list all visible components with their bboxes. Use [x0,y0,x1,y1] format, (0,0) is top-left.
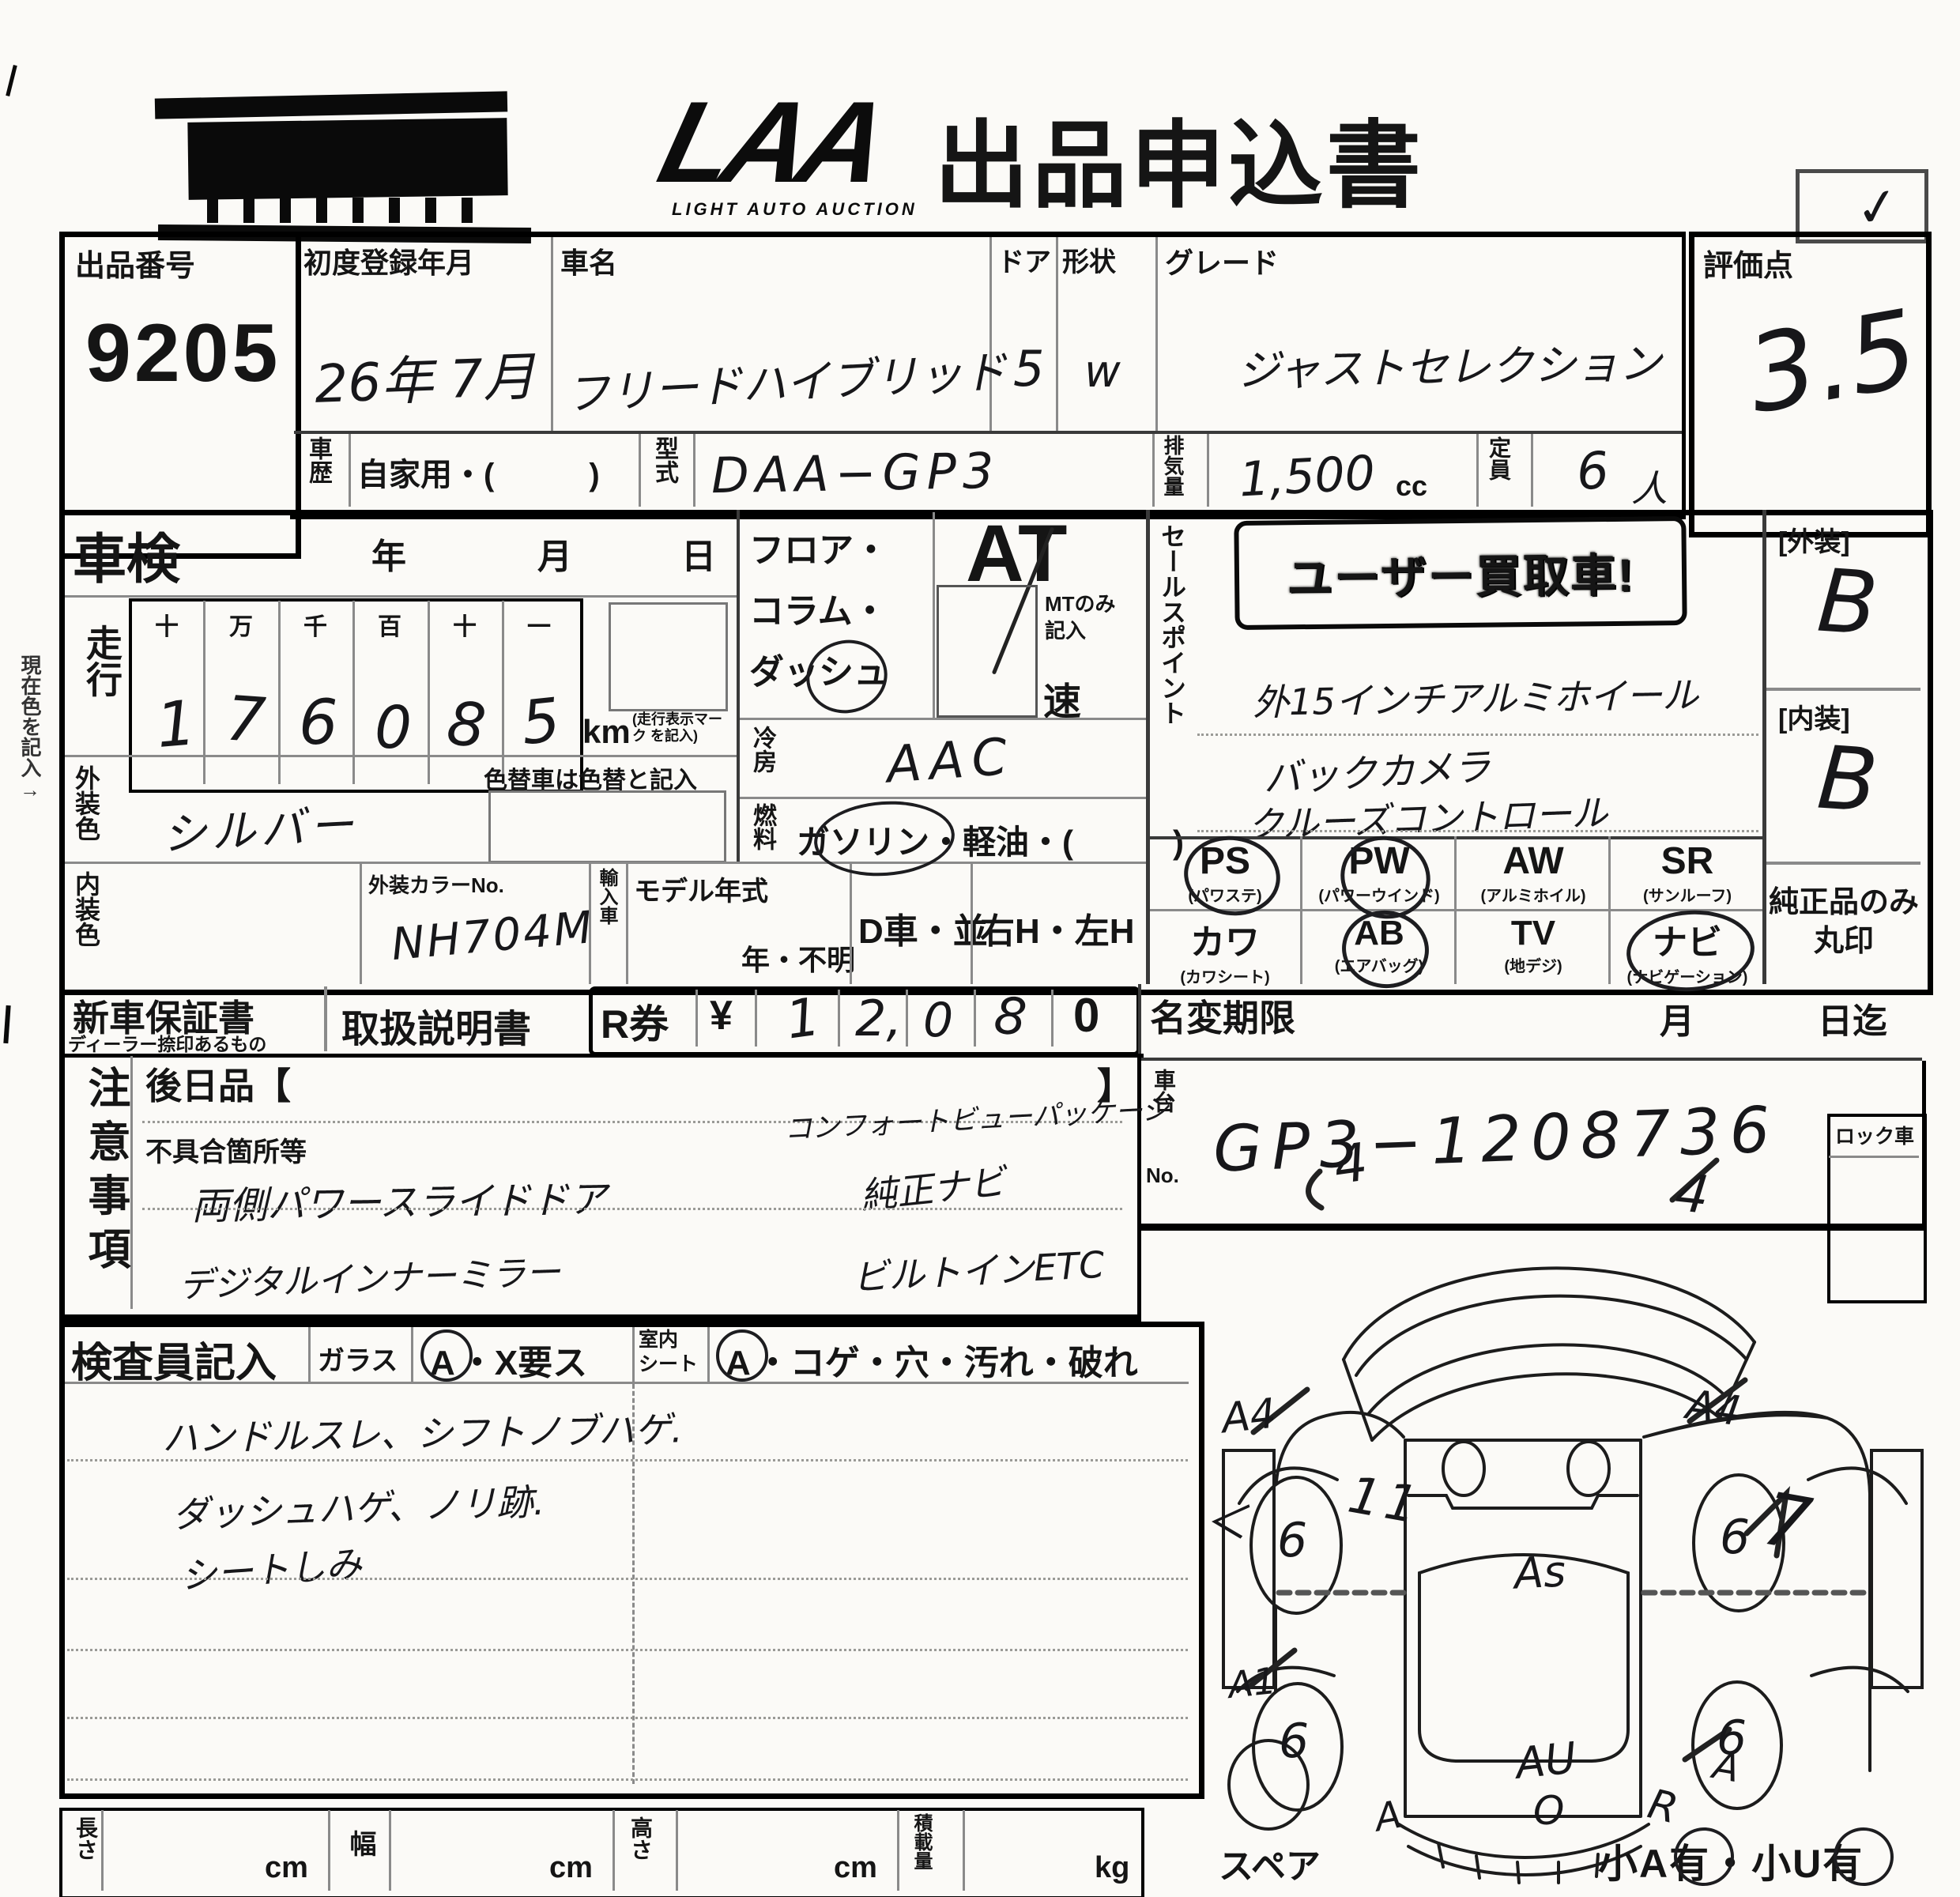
redacted-stamp [462,198,473,223]
redacted-stamp [207,198,218,223]
scan-artifact [6,65,17,96]
speed-box [937,585,1038,718]
model-year-label: モデル年式 [634,869,768,908]
score-label: 評価点 [1703,241,1793,285]
auction-sheet: LAA LIGHT AUTO AUCTION 出品申込書 ✓ 出品番号 9205… [0,0,1960,1897]
chassis-label-no: No. [1146,1163,1179,1188]
name-change-month: 月 [1660,993,1694,1043]
mileage-digit-header: 十 [453,607,477,642]
seat-a-circle [716,1329,768,1382]
diagram-mark: 4 [1672,1162,1712,1226]
equipment-code: カワ [1150,914,1300,964]
sales-point-label: セールスポイント [1154,523,1190,832]
shape-label: 形状 [1062,240,1116,279]
sales-point-line: 外15インチアルミホイール [1252,666,1698,726]
capacity-unit: 人 [1631,460,1668,512]
measurements-row [59,1808,1144,1897]
amount-digit: 0 [923,993,953,1048]
height-label: 高さ [624,1816,656,1888]
equipment-name: (サンルーフ) [1612,883,1762,906]
seat-label-line1: 室内 [639,1328,698,1352]
attention-label: 注意事項 [74,1065,137,1303]
equipment-name: (カワシート) [1150,964,1300,987]
shaken-year-label: 年 [371,528,406,579]
diagram-mark: O [1533,1788,1564,1834]
first-reg-label: 初度登録年月 [303,240,474,281]
length-unit: cm [265,1851,308,1885]
doors-value: 5 [1013,340,1044,398]
shaken-day-label: 日 [681,528,716,579]
mileage-digit-header: 万 [229,607,253,642]
redacted-stamp [425,198,436,223]
interior-grade-value: B [1815,727,1881,832]
shaken-month-label: 月 [537,528,572,579]
auction-no-value: 9205 [85,307,281,401]
inspector-note: ハンドルスレ、シフトノブハゲ. [161,1401,683,1461]
model-year-value: 年・不明 [741,937,855,979]
later-items-label: 後日品【 [145,1058,291,1110]
mileage-digit-header: 一 [527,607,551,642]
current-color-note: 現在色を記入→ [16,654,45,892]
mileage-extra-box [609,602,728,711]
diagram-mark: A1 [1226,1659,1278,1707]
amount-printed-zero: 0 [1073,988,1099,1043]
width-label: 幅 [341,1830,380,1877]
mileage-digit: 5 [518,685,563,759]
scan-artifact [3,1005,10,1043]
diagram-mark: 6 [1277,1513,1307,1568]
diagram-mark: 11 [1344,1465,1427,1536]
mileage-digit: 0 [375,694,412,762]
cooling-label: 冷房 [744,726,779,794]
fuel-label: 燃料 [744,803,779,871]
defect-label: 不具合箇所等 [145,1130,307,1169]
mt-note: MTのみ記入 [1045,591,1133,645]
redacted-stamp [187,118,507,200]
currency-symbol: ¥ [710,992,733,1039]
equipment-cell-aw: AW (アルミホイル) [1458,839,1608,906]
diagram-mark: A4 [1683,1382,1743,1436]
auction-no-label: 出品番号 [75,241,195,285]
diagram-mark: ＜ [1203,1488,1247,1552]
glass-label: ガラス [318,1339,398,1378]
height-unit: cm [834,1851,877,1885]
grade-label: グレード [1165,240,1279,281]
user-kaitori-stamp: ユーザー買取車! [1234,516,1687,630]
equipment-cell-kawa: カワ (カワシート) [1150,914,1300,987]
equipment-code: AW [1458,839,1608,883]
seat-label-line2: シート [639,1352,698,1377]
redacted-stamp [316,198,327,223]
seat-codes: A・コゲ・穴・汚れ・破れ [721,1334,1138,1385]
first-reg-value: 26年 7月 [313,334,536,418]
redacted-stamp [280,198,291,223]
mileage-unit-note: (走行表示マーク を記入) [632,711,735,744]
color-no-label: 外装カラーNo. [368,869,504,899]
equipment-cell-sr: SR (サンルーフ) [1612,839,1762,906]
d-car-label: D車・並 [858,903,988,953]
inspector-label: 検査員記入 [71,1329,277,1389]
displacement-value: 1,500 [1238,446,1376,508]
capacity-value: 6 [1574,442,1611,503]
r-ticket-label: R券 [601,993,669,1050]
seat-label: 室内 シート [639,1328,698,1378]
mileage-unit: km [582,713,631,751]
mileage-digit-header: 百 [378,607,401,642]
diagram-mark: AU [1513,1733,1579,1789]
spare-label: スペア [1219,1838,1321,1888]
diagram-mark: A4 [1219,1390,1279,1443]
mileage-digit: 1 [153,688,198,762]
diagram-mark: 6 [1279,1714,1309,1769]
history-label: 車歴 [300,436,335,507]
shaken-label: 車検 [73,515,180,594]
page-title: 出品申込書 [934,89,1424,226]
length-label: 長さ [70,1816,101,1888]
load-label: 積載量 [907,1813,935,1891]
capacity-label: 定員 [1483,436,1514,507]
mileage-digit: 8 [443,688,488,762]
genuine-note: 純正品のみ 丸印 [1769,884,1919,962]
attention-note-left: 両側パワースライドドア [190,1167,607,1230]
exterior-color-value: シルバー [160,790,360,864]
check-icon: ✓ [1852,175,1903,241]
import-label: 輸入車 [593,868,620,979]
model-code-value: DAA−GP3 [710,442,1001,504]
fuel-rest: ・軽油・( ) [929,824,1184,861]
name-change-label: 名変期限 [1150,990,1295,1042]
shape-value: W [1084,346,1121,398]
genuine-note-line2: 丸印 [1769,922,1919,961]
redacted-stamp [155,91,507,119]
diagram-mark: 6 [1720,1510,1750,1565]
diagram-mark: As [1513,1546,1566,1598]
car-name-label: 車名 [560,240,617,281]
equipment-name: (アルミホイル) [1458,883,1608,906]
glass-code-rest: ・X要ス [460,1344,587,1382]
equipment-cell-tv: TV (地デジ) [1458,914,1608,976]
laa-logo-subtitle: LIGHT AUTO AUCTION [672,199,918,220]
mileage-digit-header: 千 [303,607,327,642]
displacement-label: 排気量 [1159,435,1188,507]
amount-digit: 2, [855,990,902,1047]
exterior-color-label: 外装色 [68,765,104,860]
exterior-grade-value: B [1815,550,1881,655]
amount-digit: 8 [992,986,1029,1047]
redacted-stamp [352,198,364,223]
seat-code-rest: ・コゲ・穴・汚れ・破れ [756,1344,1138,1382]
equipment-name: (地デジ) [1458,953,1608,976]
model-code-label: 型式 [646,436,681,507]
displacement-unit: cc [1396,470,1427,503]
history-value: 自家用・( ) [357,449,600,495]
handle-label: 右H・左H [980,903,1135,953]
mileage-digit-header: 十 [155,607,179,642]
mileage-label: 走行 [76,624,128,767]
mileage-digit: 7 [224,683,268,756]
name-change-until: 日迄 [1818,993,1887,1043]
glass-a-circle [420,1329,473,1382]
warranty-sub: ディーラー捺印あるもの [68,1029,266,1056]
car-diagram-svg [1201,1122,1960,1897]
user-kaitori-stamp-text: ユーザー買取車! [1286,538,1634,609]
redacted-stamp [389,198,400,223]
car-diagram: 4 4 A4 A4 6 6 6 6 11 ＜ As 7 A1 A AU O A … [1201,1122,1960,1897]
mileage-digit: 6 [299,688,338,759]
equipment-code: TV [1458,914,1608,953]
laa-logo: LAA [647,76,894,209]
load-unit: kg [1095,1851,1129,1885]
manual-label: 取扱説明書 [341,998,531,1053]
genuine-note-line1: 純正品のみ [1769,884,1919,922]
cooling-value: AAC [885,727,1017,794]
equipment-code: SR [1612,839,1762,883]
recolor-box [488,790,726,863]
grade-value: ジャストセレクション [1236,328,1662,398]
doors-label: ドア [997,240,1051,279]
interior-color-label: 内装色 [68,871,104,974]
width-unit: cm [549,1851,593,1885]
redacted-stamp [243,198,254,223]
